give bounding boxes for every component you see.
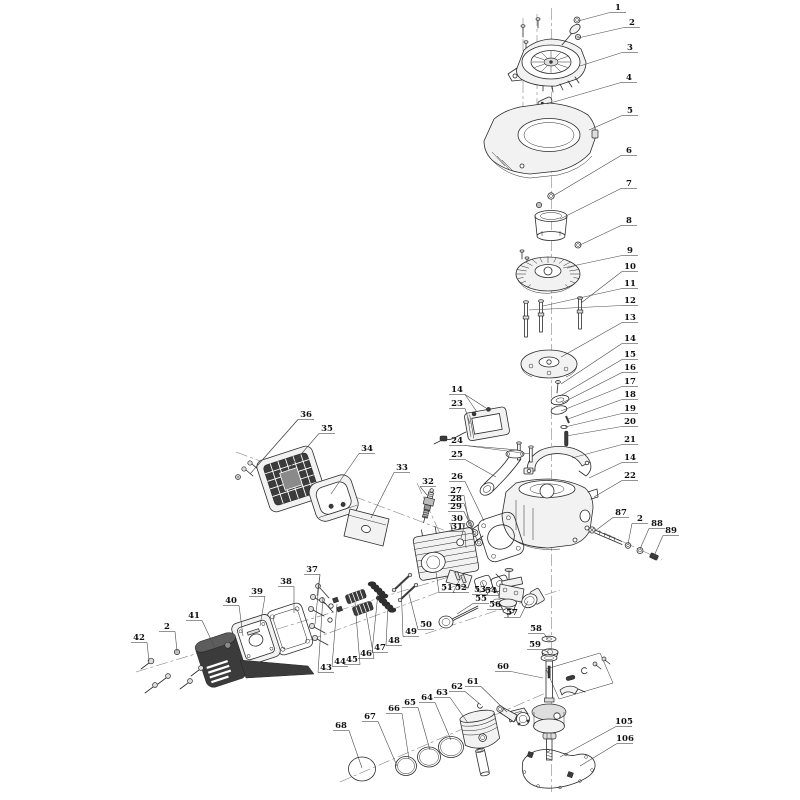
diagram-svg: 1234567891011121314151617181920211422363…: [0, 0, 800, 800]
callout-number: 22: [624, 471, 636, 481]
callout-number: 7: [626, 179, 632, 189]
callout-number: 106: [616, 734, 634, 744]
callout-number: 29: [450, 502, 462, 512]
callout-number: 59: [529, 640, 541, 650]
callout-leader: [568, 400, 622, 420]
piston: [459, 708, 501, 751]
long-studs: [523, 297, 583, 337]
callout-number: 45: [346, 655, 358, 665]
callout-number: 63: [436, 688, 448, 698]
callout-number: 105: [615, 717, 633, 727]
callout-leader: [318, 597, 323, 673]
callout-leader: [511, 672, 543, 679]
callout-number: 19: [624, 404, 636, 414]
callout-number: 41: [188, 611, 200, 621]
callout-number: 18: [624, 390, 636, 400]
callout-leader: [464, 496, 469, 525]
callout-leader: [402, 714, 409, 760]
air-baffle: [524, 446, 591, 476]
callout-number: 38: [280, 577, 292, 587]
callout-leader: [560, 189, 621, 220]
callout-leader: [378, 722, 397, 767]
callout-leader: [628, 524, 632, 545]
callout-leader: [401, 582, 403, 637]
piston-rings: [349, 737, 464, 782]
callout-number: 37: [306, 565, 318, 575]
callout-number: 87: [615, 508, 627, 518]
callout-number: 3: [627, 43, 633, 53]
callout-number: 16: [624, 363, 636, 373]
starter-cup: [535, 211, 567, 241]
callout-leader: [589, 463, 622, 479]
callout-leader: [529, 306, 622, 311]
callout-number: 24: [451, 436, 463, 446]
recoil-starter: [508, 22, 586, 92]
valve-train-parts: [316, 573, 418, 616]
callout-leader: [563, 256, 622, 269]
callout-number: 5: [627, 106, 633, 116]
callout-number: 15: [624, 350, 636, 360]
callout-number: 34: [361, 444, 373, 454]
callout-leader: [435, 703, 451, 741]
callout-number: 56: [489, 600, 501, 610]
callout-number: 12: [624, 296, 636, 306]
callout-number: 10: [624, 262, 636, 272]
callout-leader: [465, 395, 489, 411]
callout-leader: [465, 446, 518, 451]
exploded-parts-diagram: 1234567891011121314151617181920211422363…: [0, 0, 800, 800]
callout-leader: [175, 632, 177, 652]
callout-number: 62: [451, 682, 463, 692]
cylinder-head: [411, 520, 479, 581]
callout-number: 50: [420, 620, 432, 630]
callout-leader: [465, 692, 481, 706]
callout-number: 88: [651, 519, 663, 529]
muffler-bolts: [236, 461, 259, 480]
blower-housing: [484, 103, 598, 178]
heat-shield-bracket: [344, 509, 389, 546]
callout-number: 48: [388, 636, 400, 646]
callout-number: 8: [626, 216, 632, 226]
callout-leader: [560, 727, 616, 758]
cover-gasket: [522, 749, 595, 789]
callout-leader: [147, 643, 149, 662]
callout-number: 32: [422, 477, 434, 487]
callout-number: 2: [637, 514, 643, 524]
callout-number: 61: [467, 677, 479, 687]
callout-number: 64: [421, 693, 433, 703]
callout-number: 14: [451, 385, 463, 395]
callout-number: 55: [475, 594, 487, 604]
callout-leader: [578, 13, 610, 22]
callout-number: 25: [451, 450, 463, 460]
callout-number: 1: [615, 3, 621, 13]
long-valve: [439, 606, 478, 628]
callout-leader: [409, 594, 418, 630]
ignition-coil: [464, 404, 511, 441]
callout-number: 49: [405, 627, 417, 637]
callout-number: 60: [497, 662, 509, 672]
callout-number: 9: [627, 246, 633, 256]
callout-leader: [589, 116, 622, 131]
callout-number: 14: [624, 334, 636, 344]
callout-leader: [566, 427, 622, 437]
pulley-plate: [521, 350, 577, 378]
callout-number: 51: [441, 583, 453, 593]
callout-leader: [640, 529, 649, 550]
callout-number: 23: [451, 399, 463, 409]
callout-number: 17: [624, 377, 636, 387]
callout-number: 14: [624, 453, 636, 463]
callout-leader: [578, 28, 624, 39]
callout-number: 67: [364, 712, 376, 722]
callout-leader: [547, 83, 621, 105]
callout-number: 2: [629, 18, 635, 28]
callout-number: 52: [455, 583, 467, 593]
callout-number: 89: [665, 526, 677, 536]
callout-leader: [465, 395, 477, 413]
callout-leader: [371, 473, 394, 519]
callout-leader: [450, 698, 468, 724]
callout-number: 2: [164, 622, 170, 632]
callout-number: 36: [300, 410, 312, 420]
callout-number: 57: [506, 608, 518, 618]
callout-number: 47: [374, 643, 386, 653]
piston-pin: [475, 748, 490, 777]
callout-number: 46: [360, 649, 372, 659]
callout-number: 33: [396, 463, 408, 473]
callout-leader: [543, 289, 622, 307]
callout-number: 68: [335, 721, 347, 731]
callout-number: 40: [225, 596, 237, 606]
callout-number: 21: [624, 435, 636, 445]
callout-number: 11: [624, 279, 636, 289]
breather-duct: [240, 660, 314, 678]
callout-leader: [465, 460, 496, 478]
callout-number: 44: [334, 657, 346, 667]
crankshaft: [532, 655, 566, 760]
callout-leader: [654, 536, 663, 557]
callout-number: 43: [320, 663, 332, 673]
callout-number: 58: [530, 624, 542, 634]
callout-number: 65: [404, 698, 416, 708]
callout-leader: [581, 272, 622, 304]
callout-number: 4: [626, 73, 632, 83]
callout-leader: [565, 414, 622, 428]
callout-number: 42: [133, 633, 145, 643]
callout-number: 26: [451, 472, 463, 482]
callout-leader: [420, 487, 427, 496]
callout-number: 66: [388, 704, 400, 714]
callout-leader: [595, 518, 613, 532]
callout-leader: [481, 687, 507, 713]
callout-leader: [418, 708, 430, 751]
callout-number: 35: [321, 424, 333, 434]
cover-screws: [141, 649, 203, 693]
callout-number: 20: [624, 417, 636, 427]
flywheel-fan: [516, 257, 580, 293]
callout-number: 39: [251, 587, 263, 597]
callout-leader: [580, 53, 622, 67]
callout-number: 6: [626, 146, 632, 156]
callout-number: 31: [451, 522, 463, 532]
callout-leader: [594, 481, 622, 498]
callout-leader: [561, 323, 622, 358]
callout-number: 13: [624, 313, 636, 323]
callout-leader: [580, 226, 621, 246]
side-bolt-set: [589, 527, 659, 561]
